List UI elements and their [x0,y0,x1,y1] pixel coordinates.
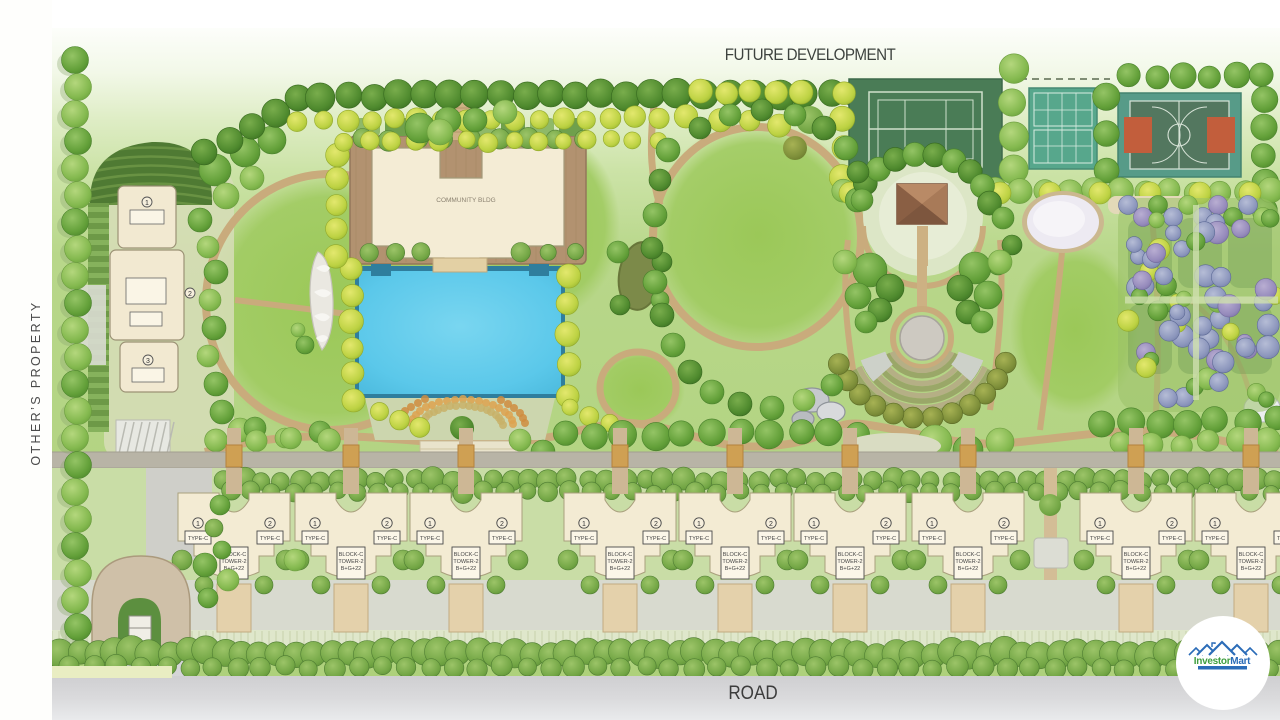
svg-text:InvestorMart: InvestorMart [1194,656,1251,667]
svg-text:BLOCK-C: BLOCK-C [1239,552,1263,558]
svg-text:TYPE-C: TYPE-C [492,536,512,542]
svg-text:BLOCK-C: BLOCK-C [1124,552,1148,558]
svg-text:BLOCK-C: BLOCK-C [723,552,747,558]
svg-text:2: 2 [1002,521,1006,528]
svg-text:1: 1 [697,521,701,528]
svg-text:2: 2 [188,291,192,298]
svg-text:TYPE-C: TYPE-C [1162,536,1182,542]
svg-text:TOWER-2: TOWER-2 [1238,559,1263,565]
svg-text:B+G+22: B+G+22 [840,566,861,572]
svg-text:TOWER-2: TOWER-2 [607,559,632,565]
svg-text:2: 2 [500,521,504,528]
svg-text:B+G+22: B+G+22 [1241,566,1262,572]
svg-text:1: 1 [313,521,317,528]
svg-text:1: 1 [930,521,934,528]
svg-text:TOWER-2: TOWER-2 [1123,559,1148,565]
svg-text:2: 2 [769,521,773,528]
svg-text:TOWER-2: TOWER-2 [722,559,747,565]
svg-text:TYPE-C: TYPE-C [574,536,594,542]
svg-text:2: 2 [268,521,272,528]
svg-text:B+G+22: B+G+22 [610,566,631,572]
svg-text:3: 3 [146,358,150,365]
svg-text:BLOCK-C: BLOCK-C [339,552,363,558]
svg-text:BLOCK-C: BLOCK-C [608,552,632,558]
svg-text:TYPE-C: TYPE-C [804,536,824,542]
svg-text:TYPE-C: TYPE-C [260,536,280,542]
svg-text:B+G+22: B+G+22 [725,566,746,572]
svg-text:TYPE-C: TYPE-C [377,536,397,542]
svg-text:TOWER-2: TOWER-2 [453,559,478,565]
svg-text:TYPE-C: TYPE-C [188,536,208,542]
svg-text:1: 1 [582,521,586,528]
svg-text:2: 2 [884,521,888,528]
svg-text:B+G+22: B+G+22 [341,566,362,572]
svg-text:TYPE-C: TYPE-C [646,536,666,542]
svg-text:B+G+22: B+G+22 [1126,566,1147,572]
svg-text:TYPE-C: TYPE-C [994,536,1014,542]
svg-text:TYPE-C: TYPE-C [922,536,942,542]
svg-text:TYPE-C: TYPE-C [1205,536,1225,542]
svg-text:2: 2 [385,521,389,528]
svg-text:1: 1 [145,200,149,207]
svg-text:ROAD: ROAD [728,682,777,703]
svg-text:B+G+22: B+G+22 [958,566,979,572]
svg-text:2: 2 [654,521,658,528]
svg-text:1: 1 [196,521,200,528]
svg-text:COMMUNITY BLDG: COMMUNITY BLDG [436,197,495,204]
svg-text:TYPE-C: TYPE-C [761,536,781,542]
svg-text:1: 1 [812,521,816,528]
svg-text:1: 1 [428,521,432,528]
svg-text:BLOCK-C: BLOCK-C [956,552,980,558]
svg-text:TOWER-2: TOWER-2 [221,559,246,565]
svg-text:FUTURE DEVELOPMENT: FUTURE DEVELOPMENT [725,46,896,64]
svg-text:1: 1 [1213,521,1217,528]
svg-text:TYPE-C: TYPE-C [420,536,440,542]
svg-text:TOWER-2: TOWER-2 [837,559,862,565]
svg-text:TYPE-C: TYPE-C [305,536,325,542]
svg-text:1: 1 [1098,521,1102,528]
svg-text:TYPE-C: TYPE-C [1090,536,1110,542]
svg-text:TYPE-C: TYPE-C [876,536,896,542]
svg-text:TYPE-C: TYPE-C [689,536,709,542]
svg-text:B+G+22: B+G+22 [456,566,477,572]
svg-text:TOWER-2: TOWER-2 [955,559,980,565]
svg-text:BLOCK-C: BLOCK-C [454,552,478,558]
svg-text:OTHER’S PROPERTY: OTHER’S PROPERTY [29,300,43,465]
svg-text:BLOCK-C: BLOCK-C [838,552,862,558]
svg-text:2: 2 [1170,521,1174,528]
svg-text:TOWER-2: TOWER-2 [338,559,363,565]
